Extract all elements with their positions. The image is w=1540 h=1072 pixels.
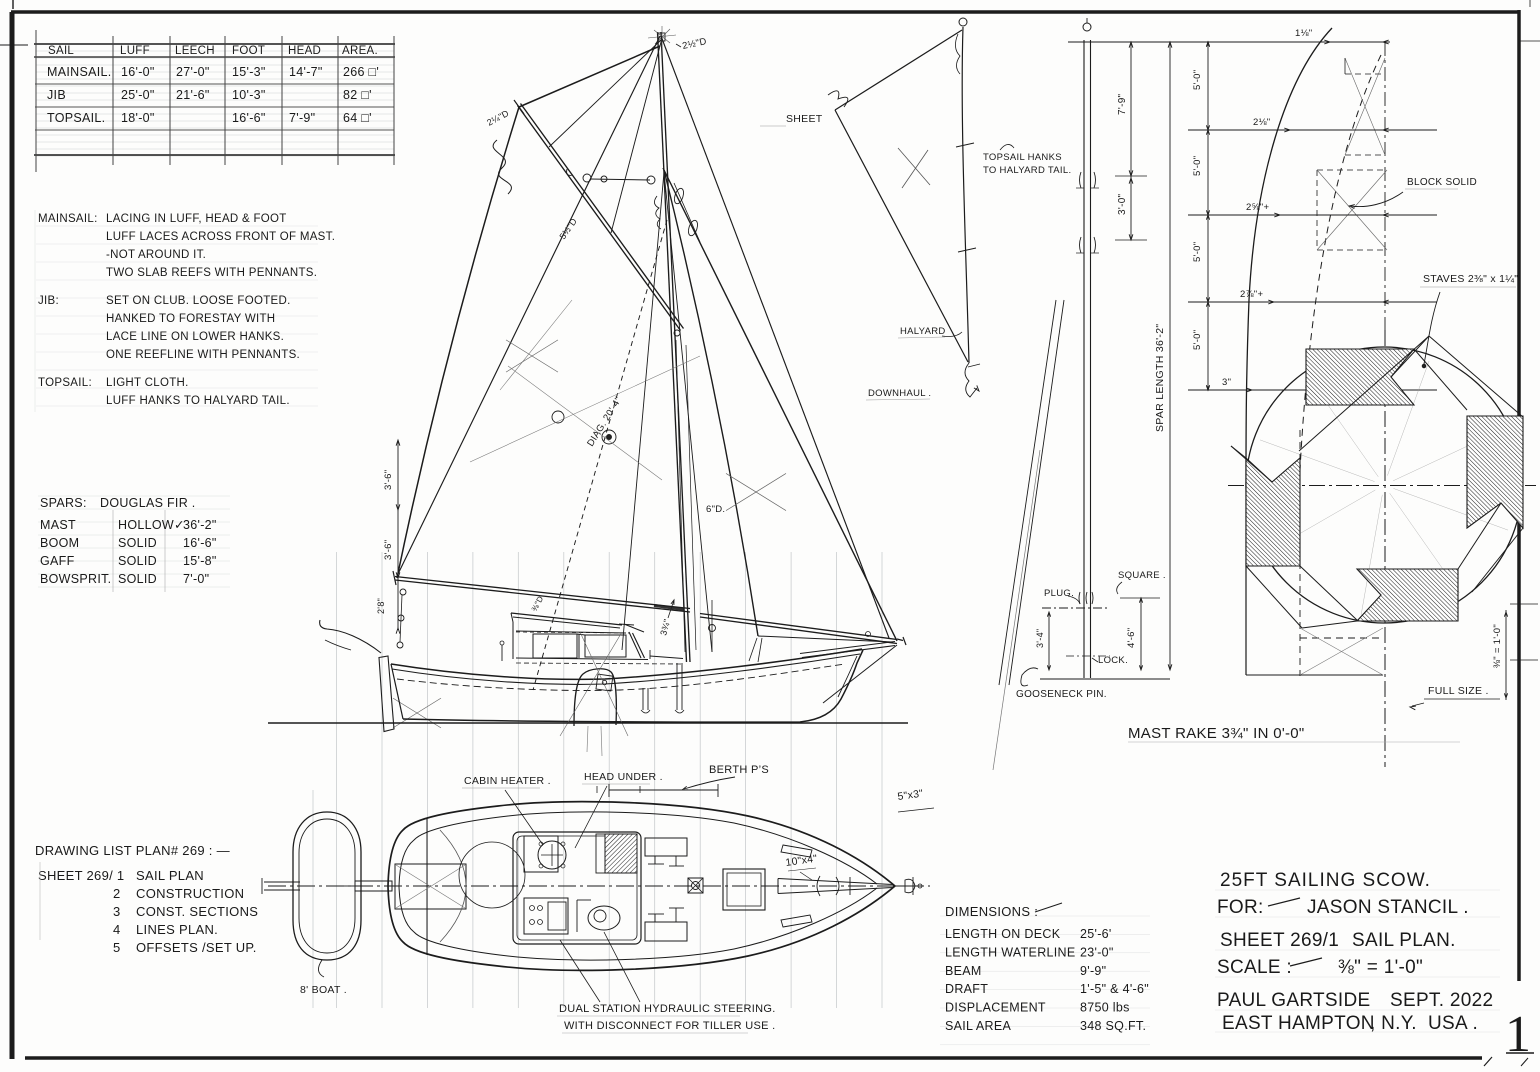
svg-text:SHEET 269/1: SHEET 269/1 [1220, 930, 1339, 951]
svg-text:FULL SIZE .: FULL SIZE . [1428, 685, 1489, 697]
svg-text:SEPT. 2022: SEPT. 2022 [1390, 990, 1493, 1011]
svg-text:SPARS:: SPARS: [40, 496, 87, 510]
svg-text:DIMENSIONS :: DIMENSIONS : [945, 904, 1038, 919]
svg-text:LEECH: LEECH [175, 45, 215, 57]
svg-text:DISPLACEMENT: DISPLACEMENT [945, 1001, 1046, 1015]
svg-text:27'-0": 27'-0" [176, 65, 210, 79]
svg-text:4'-6": 4'-6" [1126, 628, 1137, 648]
svg-text:6"D.: 6"D. [706, 504, 725, 515]
svg-text:SQUARE .: SQUARE . [1118, 570, 1166, 581]
svg-text:25'-0": 25'-0" [121, 88, 155, 102]
svg-text:7'-9": 7'-9" [289, 111, 315, 125]
svg-text:SAIL AREA: SAIL AREA [945, 1019, 1012, 1033]
svg-text:SOLID: SOLID [118, 572, 157, 586]
svg-text:36'-2": 36'-2" [183, 518, 217, 532]
svg-text:LACING IN LUFF, HEAD & FOOT: LACING IN LUFF, HEAD & FOOT [106, 213, 287, 225]
svg-text:PLUG.: PLUG. [1044, 588, 1074, 599]
svg-text:DRAFT: DRAFT [945, 982, 988, 996]
svg-text:266 □': 266 □' [343, 65, 379, 79]
svg-text:SCALE :: SCALE : [1217, 957, 1292, 978]
svg-text:BOWSPRIT.: BOWSPRIT. [40, 572, 111, 586]
svg-text:8750 lbs: 8750 lbs [1080, 1001, 1130, 1015]
svg-text:21'-6": 21'-6" [176, 88, 210, 102]
svg-text:STAVES 2⅜" x 1¼": STAVES 2⅜" x 1¼" [1423, 273, 1518, 285]
svg-text:JIB: JIB [47, 88, 66, 102]
svg-text:HALYARD: HALYARD [900, 326, 946, 337]
svg-text:SOLID: SOLID [118, 536, 157, 550]
svg-text:DUAL STATION HYDRAULIC STEERIN: DUAL STATION HYDRAULIC STEERING. [559, 1003, 776, 1015]
svg-text:1⅛": 1⅛" [1295, 28, 1312, 39]
svg-text:DOWNHAUL .: DOWNHAUL . [868, 388, 931, 399]
svg-text:DRAWING LIST PLAN# 269 : —: DRAWING LIST PLAN# 269 : — [35, 843, 230, 858]
svg-text:3'-6": 3'-6" [383, 540, 394, 560]
svg-text:15'-8": 15'-8" [183, 554, 217, 568]
svg-text:1'-5" & 4'-6": 1'-5" & 4'-6" [1080, 982, 1149, 996]
svg-text:3": 3" [1222, 377, 1231, 388]
svg-text:JASON STANCIL .: JASON STANCIL . [1307, 897, 1469, 918]
svg-text:SHEET: SHEET [786, 113, 823, 125]
svg-text:FOR:: FOR: [1217, 897, 1264, 918]
svg-text:JIB:: JIB: [38, 295, 59, 307]
svg-text:348 SQ.FT.: 348 SQ.FT. [1080, 1019, 1146, 1033]
svg-text:CABIN HEATER .: CABIN HEATER . [464, 775, 551, 787]
svg-text:2⅞"+: 2⅞"+ [1240, 289, 1263, 300]
svg-text:SET ON CLUB. LOOSE FOOTED.: SET ON CLUB. LOOSE FOOTED. [106, 295, 291, 307]
svg-text:EAST HAMPTON: EAST HAMPTON [1222, 1013, 1375, 1034]
svg-text:23'-0": 23'-0" [1080, 945, 1114, 959]
svg-text:5'-0": 5'-0" [1192, 330, 1203, 350]
svg-text:DOUGLAS FIR .: DOUGLAS FIR . [100, 496, 196, 510]
svg-text:TOPSAIL HANKS: TOPSAIL HANKS [983, 152, 1062, 163]
svg-text:AREA.: AREA. [342, 45, 378, 57]
svg-text:FOOT: FOOT [232, 45, 265, 57]
svg-text:HANKED TO FORESTAY WITH: HANKED TO FORESTAY WITH [106, 313, 275, 325]
svg-text:5'-0": 5'-0" [1192, 156, 1203, 176]
svg-text:, N.Y.: , N.Y. [1370, 1013, 1417, 1034]
svg-text:⅜" = 1'-0": ⅜" = 1'-0" [1492, 624, 1503, 668]
svg-text:-NOT AROUND IT.: -NOT AROUND IT. [106, 249, 206, 261]
svg-text:HEAD: HEAD [288, 45, 321, 57]
svg-text:5: 5 [113, 940, 121, 955]
svg-text:3'-4": 3'-4" [1035, 629, 1045, 648]
svg-text:LUFF LACES ACROSS FRONT OF MAS: LUFF LACES ACROSS FRONT OF MAST. [106, 231, 335, 243]
svg-text:CONST. SECTIONS: CONST. SECTIONS [136, 904, 258, 919]
svg-text:3'-6": 3'-6" [383, 470, 394, 490]
svg-text:PAUL GARTSIDE: PAUL GARTSIDE [1217, 990, 1370, 1011]
svg-text:HEAD UNDER .: HEAD UNDER . [584, 771, 663, 783]
svg-text:2'8": 2'8" [376, 598, 386, 614]
svg-text:SAIL PLAN.: SAIL PLAN. [1352, 930, 1456, 951]
svg-text:LENGTH ON DECK: LENGTH ON DECK [945, 927, 1061, 941]
svg-text:16'-6": 16'-6" [232, 111, 266, 125]
svg-text:BERTH P’S: BERTH P’S [709, 764, 769, 776]
svg-text:LIGHT CLOTH.: LIGHT CLOTH. [106, 377, 189, 389]
svg-text:LENGTH WATERLINE: LENGTH WATERLINE [945, 945, 1076, 959]
svg-text:82 □': 82 □' [343, 88, 372, 102]
svg-text:HOLLOW✓: HOLLOW✓ [118, 518, 185, 532]
svg-text:LUFF HANKS TO HALYARD TAIL.: LUFF HANKS TO HALYARD TAIL. [106, 395, 290, 407]
svg-text:5'-0": 5'-0" [1192, 70, 1203, 90]
svg-text:OFFSETS /SET UP.: OFFSETS /SET UP. [136, 940, 257, 955]
svg-text:5'-0": 5'-0" [1192, 242, 1203, 262]
svg-text:LUFF: LUFF [120, 45, 150, 57]
svg-text:CONSTRUCTION: CONSTRUCTION [136, 886, 244, 901]
svg-text:15'-3": 15'-3" [232, 65, 266, 79]
svg-text:14'-7": 14'-7" [289, 65, 323, 79]
svg-text:TWO SLAB REEFS WITH PENNANTS.: TWO SLAB REEFS WITH PENNANTS. [106, 267, 317, 279]
svg-text:MAINSAIL:: MAINSAIL: [38, 213, 98, 225]
svg-text:2⅝"+: 2⅝"+ [1246, 202, 1269, 213]
svg-text:USA .: USA . [1428, 1013, 1478, 1034]
svg-text:LINES PLAN.: LINES PLAN. [136, 922, 218, 937]
svg-text:SPAR LENGTH 36'-2": SPAR LENGTH 36'-2" [1154, 324, 1166, 432]
svg-text:8' BOAT .: 8' BOAT . [300, 984, 347, 996]
svg-text:LACE LINE ON LOWER HANKS.: LACE LINE ON LOWER HANKS. [106, 331, 284, 343]
svg-text:7'-0": 7'-0" [183, 572, 209, 586]
svg-text:18'-0": 18'-0" [121, 111, 155, 125]
svg-text:1: 1 [1505, 1006, 1531, 1063]
svg-text:16'-0": 16'-0" [121, 65, 155, 79]
svg-text:9'-9": 9'-9" [1080, 964, 1106, 978]
svg-text:2⅛": 2⅛" [1253, 117, 1270, 128]
svg-text:7'-9": 7'-9" [1117, 93, 1128, 115]
svg-text:25FT SAILING SCOW.: 25FT SAILING SCOW. [1220, 870, 1431, 891]
svg-text:16'-6": 16'-6" [183, 536, 217, 550]
svg-text:TO HALYARD TAIL.: TO HALYARD TAIL. [983, 165, 1071, 176]
svg-text:4: 4 [113, 922, 121, 937]
svg-text:GOOSENECK PIN.: GOOSENECK PIN. [1016, 689, 1107, 700]
svg-text:GAFF: GAFF [40, 554, 75, 568]
svg-text:LOCK.: LOCK. [1098, 655, 1128, 666]
svg-text:TOPSAIL:: TOPSAIL: [38, 377, 92, 389]
svg-text:ONE REEFLINE WITH PENNANTS.: ONE REEFLINE WITH PENNANTS. [106, 349, 300, 361]
svg-text:MAST RAKE 3¾" IN 0'-0": MAST RAKE 3¾" IN 0'-0" [1128, 725, 1305, 742]
svg-text:WITH DISCONNECT FOR TILLER USE: WITH DISCONNECT FOR TILLER USE . [564, 1020, 776, 1032]
svg-text:64 □': 64 □' [343, 111, 372, 125]
svg-text:MAINSAIL.: MAINSAIL. [47, 65, 112, 79]
svg-text:3'-0": 3'-0" [1117, 193, 1128, 215]
svg-text:SOLID: SOLID [118, 554, 157, 568]
svg-text:SAIL PLAN: SAIL PLAN [136, 868, 204, 883]
svg-text:BOOM: BOOM [40, 536, 79, 550]
svg-text:25'-6': 25'-6' [1080, 927, 1112, 941]
svg-text:10'-3": 10'-3" [232, 88, 266, 102]
svg-text:SHEET 269/ 1: SHEET 269/ 1 [38, 868, 124, 883]
svg-text:2: 2 [113, 886, 121, 901]
svg-text:SAIL: SAIL [48, 45, 74, 57]
svg-text:BEAM: BEAM [945, 964, 982, 978]
svg-text:3: 3 [113, 904, 121, 919]
svg-text:TOPSAIL.: TOPSAIL. [47, 111, 105, 125]
svg-text:BLOCK SOLID: BLOCK SOLID [1407, 177, 1477, 188]
svg-text:⅜" = 1'-0": ⅜" = 1'-0" [1338, 957, 1423, 978]
svg-text:MAST: MAST [40, 518, 76, 532]
